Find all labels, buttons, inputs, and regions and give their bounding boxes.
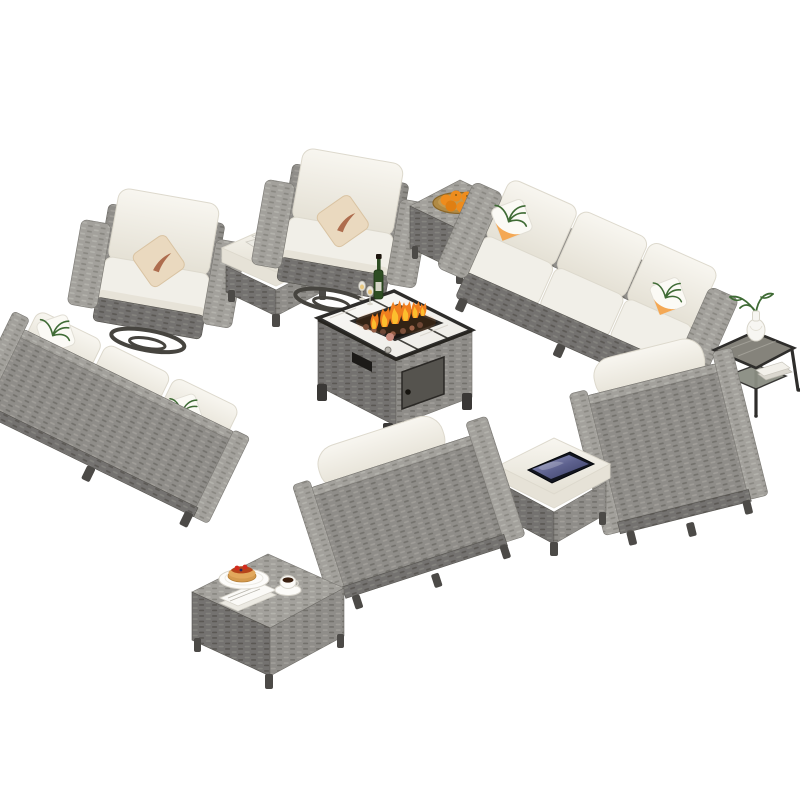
table-leg	[194, 638, 201, 652]
table-leg	[412, 246, 418, 259]
chair-leg	[742, 499, 753, 515]
firepit-foot	[317, 384, 327, 401]
chair-leg	[626, 530, 637, 546]
ottoman-leg	[272, 314, 280, 327]
ottoman-leg	[599, 512, 606, 525]
ottoman-leg	[228, 290, 235, 302]
product-photo-stage	[0, 0, 800, 800]
chair-leg	[352, 594, 364, 610]
chair-leg	[431, 572, 443, 588]
chair-leg	[686, 522, 697, 538]
vase-with-plant	[730, 294, 773, 341]
firepit-foot	[462, 393, 472, 410]
chair-leg	[499, 544, 511, 560]
lid-hook	[385, 347, 391, 353]
table-leg	[265, 674, 273, 689]
table-leg	[337, 634, 344, 648]
patio-furniture-set-image	[0, 0, 800, 800]
ottoman-leg	[550, 542, 558, 556]
